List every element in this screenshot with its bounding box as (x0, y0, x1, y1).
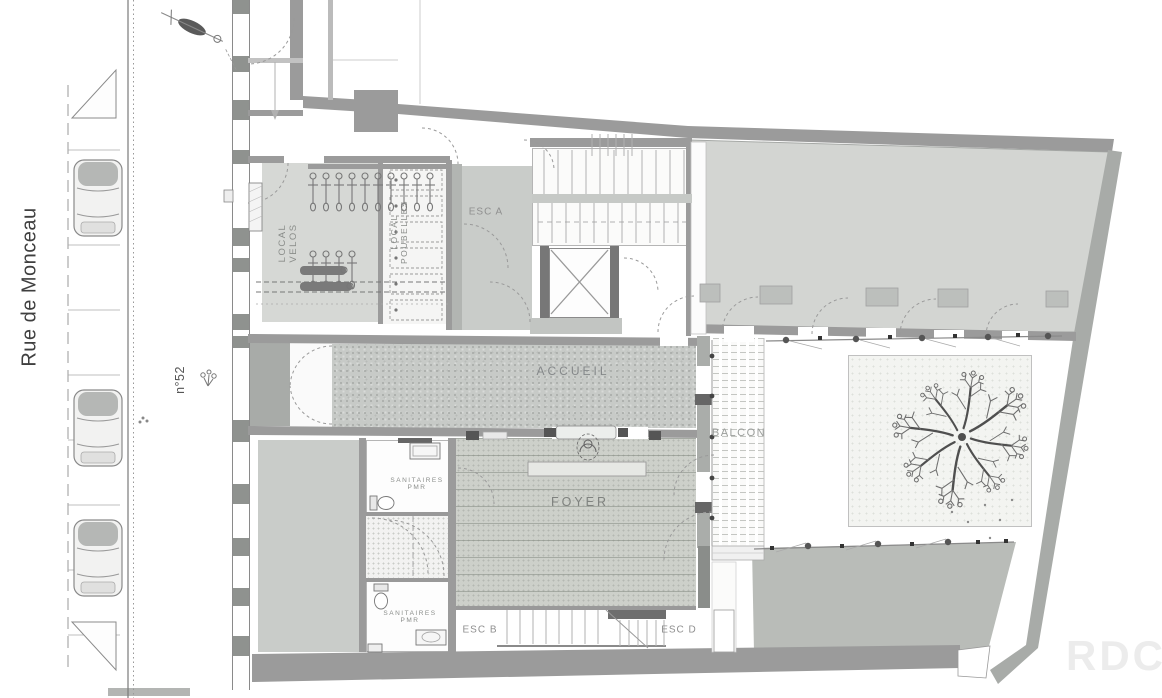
room-label-sanitaires-upper: SANITAIRES PMR (390, 477, 443, 491)
room-label-line: LOCAL (389, 200, 399, 264)
street-triangle-top (72, 70, 116, 118)
building-number-label: n°52 (173, 366, 187, 394)
room-label-local-poubelles: LOCAL POUBELLES (389, 200, 409, 264)
room-label-esc-d: ESC D (661, 625, 697, 636)
plan-linework (0, 0, 1162, 698)
street-triangle-bottom (72, 622, 116, 670)
welcome-desk (556, 426, 616, 439)
room-label-esc-b: ESC B (462, 625, 497, 636)
room-label-accueil: ACCUEIL (536, 364, 609, 378)
floor-plan-canvas: Rue de Monceau n°52 LOCAL VELOS LOCAL PO… (0, 0, 1162, 698)
room-label-line: VELOS (288, 223, 299, 262)
room-label-balcon: BALCON (712, 427, 766, 439)
foyer-counter (528, 462, 646, 476)
courtyard-lower-walkway (752, 542, 1016, 652)
tree-icon (889, 368, 1032, 539)
room-label-line: PMR (383, 617, 436, 624)
entry-arrow (271, 62, 279, 120)
floor-watermark: RDC (1066, 632, 1162, 680)
stair-esc-a (532, 150, 692, 243)
room-label-local-velos: LOCAL VELOS (277, 223, 299, 262)
room-label-line: SANITAIRES (383, 610, 436, 617)
room-label-line: POUBELLES (399, 200, 409, 264)
room-label-line: PMR (390, 484, 443, 491)
room-label-esc-a: ESC A (469, 207, 503, 218)
facade-bench (224, 183, 262, 231)
parked-cars (74, 160, 122, 596)
room-label-sanitaires-lower: SANITAIRES PMR (383, 610, 436, 624)
street-name-label: Rue de Monceau (19, 207, 42, 366)
scooter-icon (153, 6, 248, 69)
room-label-foyer: FOYER (551, 495, 609, 509)
room-label-line: SANITAIRES (390, 477, 443, 484)
balcon-railing (710, 338, 764, 560)
top-room-partitions (333, 0, 420, 104)
room-label-line: LOCAL (277, 223, 288, 262)
stair-esc-d (606, 610, 666, 648)
elevator-cross-icon (551, 250, 608, 314)
